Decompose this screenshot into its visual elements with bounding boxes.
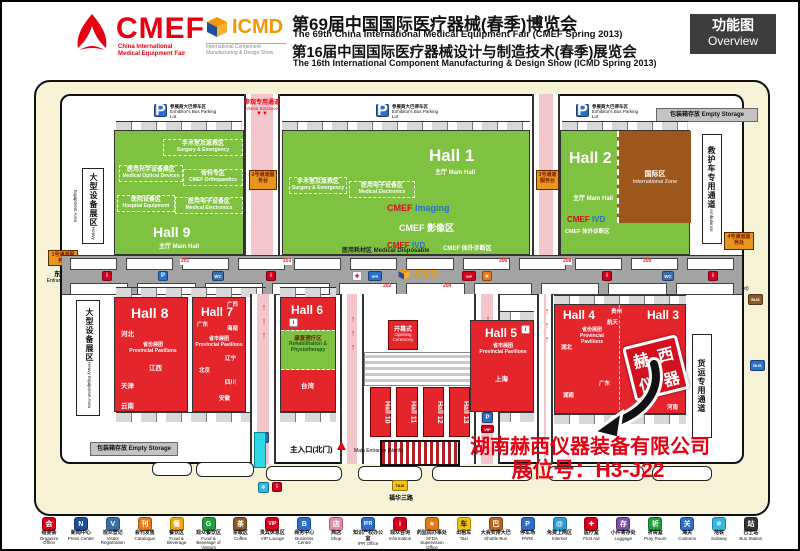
gate-tabs	[116, 287, 266, 297]
hall-1-name: Hall 1	[429, 147, 474, 164]
info-icon: i	[521, 325, 530, 334]
zone-hospital-equipment: 医院设备区Hospital Equipment	[117, 195, 175, 212]
medical-disposable-label: 医用耗材区 Medical Disposable	[342, 245, 429, 254]
overview-badge: 功能图 Overview	[690, 14, 776, 54]
legend-shuttle-bus: 巴大会安排大巴Shuttle Bus	[481, 517, 511, 549]
catalogue-icon: 刊	[138, 517, 152, 531]
corridor-2: 3号通道服务台	[532, 94, 560, 255]
heavy-equipment-label-bottom: 大型设备展区Heavy Equipment Area	[76, 300, 100, 416]
legend-luggage: 存小件寄存处Luggage	[608, 517, 638, 549]
hall-5-name: Hall 5	[485, 327, 517, 339]
hall-11: Hall 11	[396, 387, 417, 437]
room-208: 208	[562, 259, 572, 265]
cmef-emblem-icon	[72, 12, 112, 56]
legend-bus-station: 站巴士站Bus Station	[736, 517, 766, 549]
coffee-icon: 茶	[233, 517, 247, 531]
shop-icon: 店	[329, 517, 343, 531]
cmef-imaging-logo: CMEF Imaging	[387, 203, 450, 213]
legend-pray-room: 祈祈祷室Pray Room	[640, 517, 670, 549]
info-icon: i	[102, 271, 112, 281]
parking-icon: P	[154, 104, 167, 117]
icmd-logo: ICMD	[232, 16, 283, 39]
annotation-booth: 展位号：H3-J22	[476, 454, 700, 484]
service-desk-corridor1: 2号通道服务台	[249, 170, 277, 190]
province-label: 贵州	[611, 307, 622, 315]
zone-medical-electronics: 医用电子设备区Medical Electronics	[175, 197, 243, 214]
hall-9-subtitle: 主厅 Main Hall	[159, 241, 199, 250]
province-label: 湖北	[561, 343, 572, 351]
hall-6: Hall 6 i 康复理疗区 Rehabilitation & Physioth…	[280, 297, 336, 412]
legend-park: P停车场PARK	[513, 517, 543, 549]
up-arrows-icon: ↑↑↑	[542, 306, 552, 348]
provincial-pavilions-label: 省份展团Provincial Pavilions	[569, 327, 615, 345]
province-label: 上海	[495, 373, 508, 383]
legend-visitor-food: G观众餐饮区Food & Beverage of Visitors	[194, 517, 224, 549]
bus-icon: BUS	[750, 360, 765, 371]
legend-coffee: 茶茶歇区Coffee	[225, 517, 255, 549]
info-icon: i	[266, 271, 276, 281]
zone-medical-electronics: 医用电子设备区Medical Electronics	[349, 181, 415, 198]
visitor-registration-icon: V	[106, 517, 120, 531]
hall-1: Hall 1 主厅 Main Hall 手术室及急救区Surgery & Eme…	[282, 130, 530, 255]
title-line2-en: The 16th International Component Manufac…	[293, 58, 657, 68]
legend-food-beverage: 餐餐饮区Food & Beverage	[162, 517, 192, 549]
parking-area-2: P 参展商大巴停车区Exhibitor's Bus Parking Lot	[376, 104, 440, 120]
shuttle-bus-icon: 巴	[489, 517, 503, 531]
province-label: 北京	[199, 366, 210, 374]
up-arrows-icon: ↑↑↑	[259, 302, 269, 344]
empty-storage-label-bottom: 包装箱存放 Empty Storage	[90, 442, 178, 456]
hall-12: Hall 12	[423, 387, 444, 437]
vip-icon: VIP	[462, 271, 476, 281]
gate-tabs	[280, 287, 336, 297]
bus-station-icon: 站	[744, 517, 758, 531]
customs-icon: 关	[680, 517, 694, 531]
cmef-imaging-zone-label: CMEF 影像区	[399, 221, 454, 234]
province-label: 天津	[121, 380, 134, 390]
parking-area-3: P 参展商大巴停车区Exhibitor's Bus Parking Lot	[576, 104, 640, 120]
legend-business-centre: B商务中心Business Centre	[289, 517, 319, 549]
legend-sfda-office: ★药监局办事处SFDA Supervision Office	[417, 517, 447, 549]
floor-plan-map: P 参展商大巴停车区Exhibitor's Bus Parking Lot P …	[34, 80, 770, 516]
ipr-office-icon: IPR	[361, 517, 375, 531]
province-label: 台湾	[301, 380, 314, 390]
opening-ceremony-box: 开幕式 Opening Ceremony	[388, 320, 418, 350]
corridor-1: 2号通道服务台	[244, 94, 280, 255]
street-name-label: 福华三路	[380, 493, 422, 502]
legend-bar: 会组委会Organize Office N新闻中心Press Center V观…	[34, 517, 766, 549]
info-icon: i	[708, 271, 718, 281]
pray-room-icon: 祈	[648, 517, 662, 531]
room-201: 201	[180, 259, 190, 265]
road-island	[196, 462, 254, 477]
gate-tabs	[280, 412, 336, 422]
subway-entrance-strip	[254, 432, 266, 468]
provincial-pavilions-label: 省份展团Provincial Pavilions	[127, 342, 179, 354]
parking-icon: P	[158, 271, 168, 281]
legend-ipr-office: IPR知识产权办公室IPR Office	[353, 517, 383, 549]
service-desk-corridor2: 3号通道服务台	[536, 170, 559, 190]
legend-subway: ❄地铁Subway	[704, 517, 734, 549]
legend-shop: 店商店Shop	[321, 517, 351, 549]
main-entrance-arrow-icon: ▲	[334, 438, 349, 453]
visitor-channel-label: 参观专用通道 Visitor Entrance ▼▼	[230, 97, 294, 117]
overview-en: Overview	[690, 34, 776, 48]
hall-10: Hall 10	[370, 387, 391, 437]
hall-8: Hall 8 河北 省份展团Provincial Pavilions 江西 天津…	[114, 297, 188, 412]
toilet-icon: WC	[212, 271, 224, 281]
province-label: 辽宁	[225, 354, 236, 362]
heavy-equipment-label-top: 大型设备展区Heavy Equipment Area	[82, 168, 104, 244]
press-center-icon: N	[74, 517, 88, 531]
province-label: 航天	[607, 318, 618, 326]
province-label: 江西	[149, 362, 162, 372]
first-aid-icon: ✚	[584, 517, 598, 531]
information-icon: i	[393, 517, 407, 531]
sfda-star-icon: ★	[425, 517, 439, 531]
organize-office-icon: 会	[42, 517, 56, 531]
booth-pointer-arrow	[576, 350, 672, 442]
down-arrows-icon: ▼▼	[230, 111, 294, 117]
room-203: 203	[282, 259, 292, 265]
hall-4-name: Hall 4	[563, 309, 595, 321]
freight-lane-label: 货运专用通道	[692, 334, 712, 438]
province-label: 广西	[227, 300, 238, 308]
toilet-icon: WC	[662, 271, 674, 281]
parking-icon: P	[482, 412, 493, 423]
hall-2: Hall 2 主厅 Main Hall 国际区 International Zo…	[560, 130, 690, 255]
hall-9-name: Hall 9	[153, 225, 190, 239]
legend-taxi: 车出租车Taxi	[449, 517, 479, 549]
hall-7: Hall 7 广西 广东 海南 省市展团Provincial Pavilions…	[192, 297, 246, 412]
food-beverage-icon: 餐	[170, 517, 184, 531]
parking-area-1: P 参展商大巴停车区Exhibitor's Bus Parking Lot	[154, 104, 218, 120]
service-desk-right: 4号通道服务处	[724, 232, 754, 250]
ivd-zone-label: CMEF 体外诊断区	[565, 227, 610, 235]
legend-organize-office: 会组委会Organize Office	[34, 517, 64, 549]
parking-icon: P	[576, 104, 589, 117]
subway-icon: ❄	[712, 517, 726, 531]
overview-zh: 功能图	[690, 17, 776, 34]
sfda-star-icon: ★	[482, 271, 492, 281]
shuttle-bus-icon: BUS	[748, 294, 763, 305]
vip-lounge-icon: VIP	[265, 517, 279, 531]
zone-orthopaedics: 骨科专区CMEF Orthopaedics	[183, 169, 243, 186]
legend-catalogue: 刊会刊发售Catalogue	[130, 517, 160, 549]
taxi-icon: TAXI	[392, 480, 408, 491]
title-line1-en: The 69th China International Medical Equ…	[293, 29, 622, 40]
provincial-pavilions-label: 省市展团Provincial Pavilions	[479, 343, 527, 355]
business-centre-icon: B	[297, 517, 311, 531]
hall-3-name: Hall 3	[647, 309, 679, 321]
ambulance-lane-label: 救护车专用通道Ambulance	[702, 134, 722, 244]
room-204: 204	[442, 284, 452, 290]
hall-2-name: Hall 2	[569, 151, 612, 167]
hall-5: Hall 5 i 省市展团Provincial Pavilions 上海	[470, 320, 534, 412]
legend-information: i观众咨询Information	[385, 517, 415, 549]
info-icon: i	[289, 318, 298, 327]
up-arrows-icon: ↑↑↑	[348, 314, 358, 356]
zone-surgery-emergency: 手术室及急救区Surgery & Emergency	[163, 139, 243, 156]
province-label: 广东	[197, 320, 208, 328]
room-202: 202	[382, 284, 392, 290]
province-label: 云南	[121, 400, 134, 410]
zone-medical-optical: 医用光学设备展区Medical Optical Devices	[119, 165, 183, 182]
cmef-ivd-logo: CMEF IVD	[567, 215, 605, 224]
ipr-office-icon: IPR	[368, 271, 382, 281]
icmd-tagline-2: Manufacturing & Design Show	[206, 50, 273, 56]
zone-surgery-emergency: 手术室及急救区Surgery & Emergency	[289, 177, 347, 194]
hall-6-name: Hall 6	[291, 304, 323, 316]
legend-internet: @免费上网区Internet	[545, 517, 575, 549]
parking-icon: P	[521, 517, 535, 531]
internet-icon: @	[553, 517, 567, 531]
international-zone: 国际区 International Zone	[617, 131, 691, 223]
room-206: 206	[498, 259, 508, 265]
info-icon: i	[272, 482, 282, 492]
parking-icon: P	[376, 104, 389, 117]
road-island	[358, 466, 422, 481]
province-label: 安徽	[219, 394, 230, 402]
info-icon: i	[602, 271, 612, 281]
header: CMEF China International Medical Equipme…	[0, 0, 800, 78]
hall-2-subtitle: 主厅 Main Hall	[573, 193, 613, 202]
cmef-logo: CMEF	[116, 12, 205, 46]
road-island	[152, 462, 192, 476]
luggage-icon: 存	[616, 517, 630, 531]
hall-9: 手术室及急救区Surgery & Emergency 医用光学设备展区Medic…	[114, 130, 244, 255]
cmef-tagline-2: Medical Equipment Fair	[118, 51, 185, 57]
gate-tabs	[116, 412, 266, 422]
icmd-corridor-logo: ICMD	[398, 268, 438, 280]
cmef-tagline-1: China International	[118, 44, 172, 50]
legend-customs: 关海关Customs	[672, 517, 702, 549]
icmd-cube-icon	[398, 268, 410, 280]
legend-press-center: N新闻中心Press Center	[66, 517, 96, 549]
taxi-icon: 车	[457, 517, 471, 531]
province-label: 河北	[121, 328, 134, 338]
legend-first-aid: ✚医疗室First Aid	[576, 517, 606, 549]
ivd-zone-label: CMEF 体外诊断区	[443, 243, 492, 252]
hall-1-subtitle: 主厅 Main Hall	[435, 167, 475, 176]
room-209: 209	[642, 259, 652, 265]
province-label: 四川	[225, 378, 236, 386]
provincial-pavilions-label: 省市展团Provincial Pavilions	[195, 336, 243, 348]
legend-visitor-registration: V观众登记Visitor Registration	[98, 517, 128, 549]
steps	[364, 352, 474, 386]
rehabilitation-zone: 康复理疗区 Rehabilitation & Physiotherapy	[281, 330, 335, 370]
hall-8-name: Hall 8	[131, 306, 168, 320]
main-entrance-label-zh: 主入口(北门)	[290, 444, 333, 455]
first-aid-icon: ✚	[352, 271, 362, 281]
icmd-cube-icon	[206, 16, 228, 38]
province-label: 海南	[227, 324, 238, 332]
subway-icon: ❄	[258, 482, 269, 493]
main-entrance-label-en: Main Entrance (North)	[354, 448, 424, 454]
road-island	[266, 466, 342, 481]
legend-vip-lounge: VIP贵宾休息区VIP Lounge	[257, 517, 287, 549]
visitor-food-icon: G	[202, 517, 216, 531]
parking-label-en: Exhibitor's Bus Parking Lot	[170, 109, 216, 119]
province-label: 湖南	[563, 391, 574, 399]
empty-storage-label-top: 包装箱存放 Empty Storage	[656, 108, 758, 122]
